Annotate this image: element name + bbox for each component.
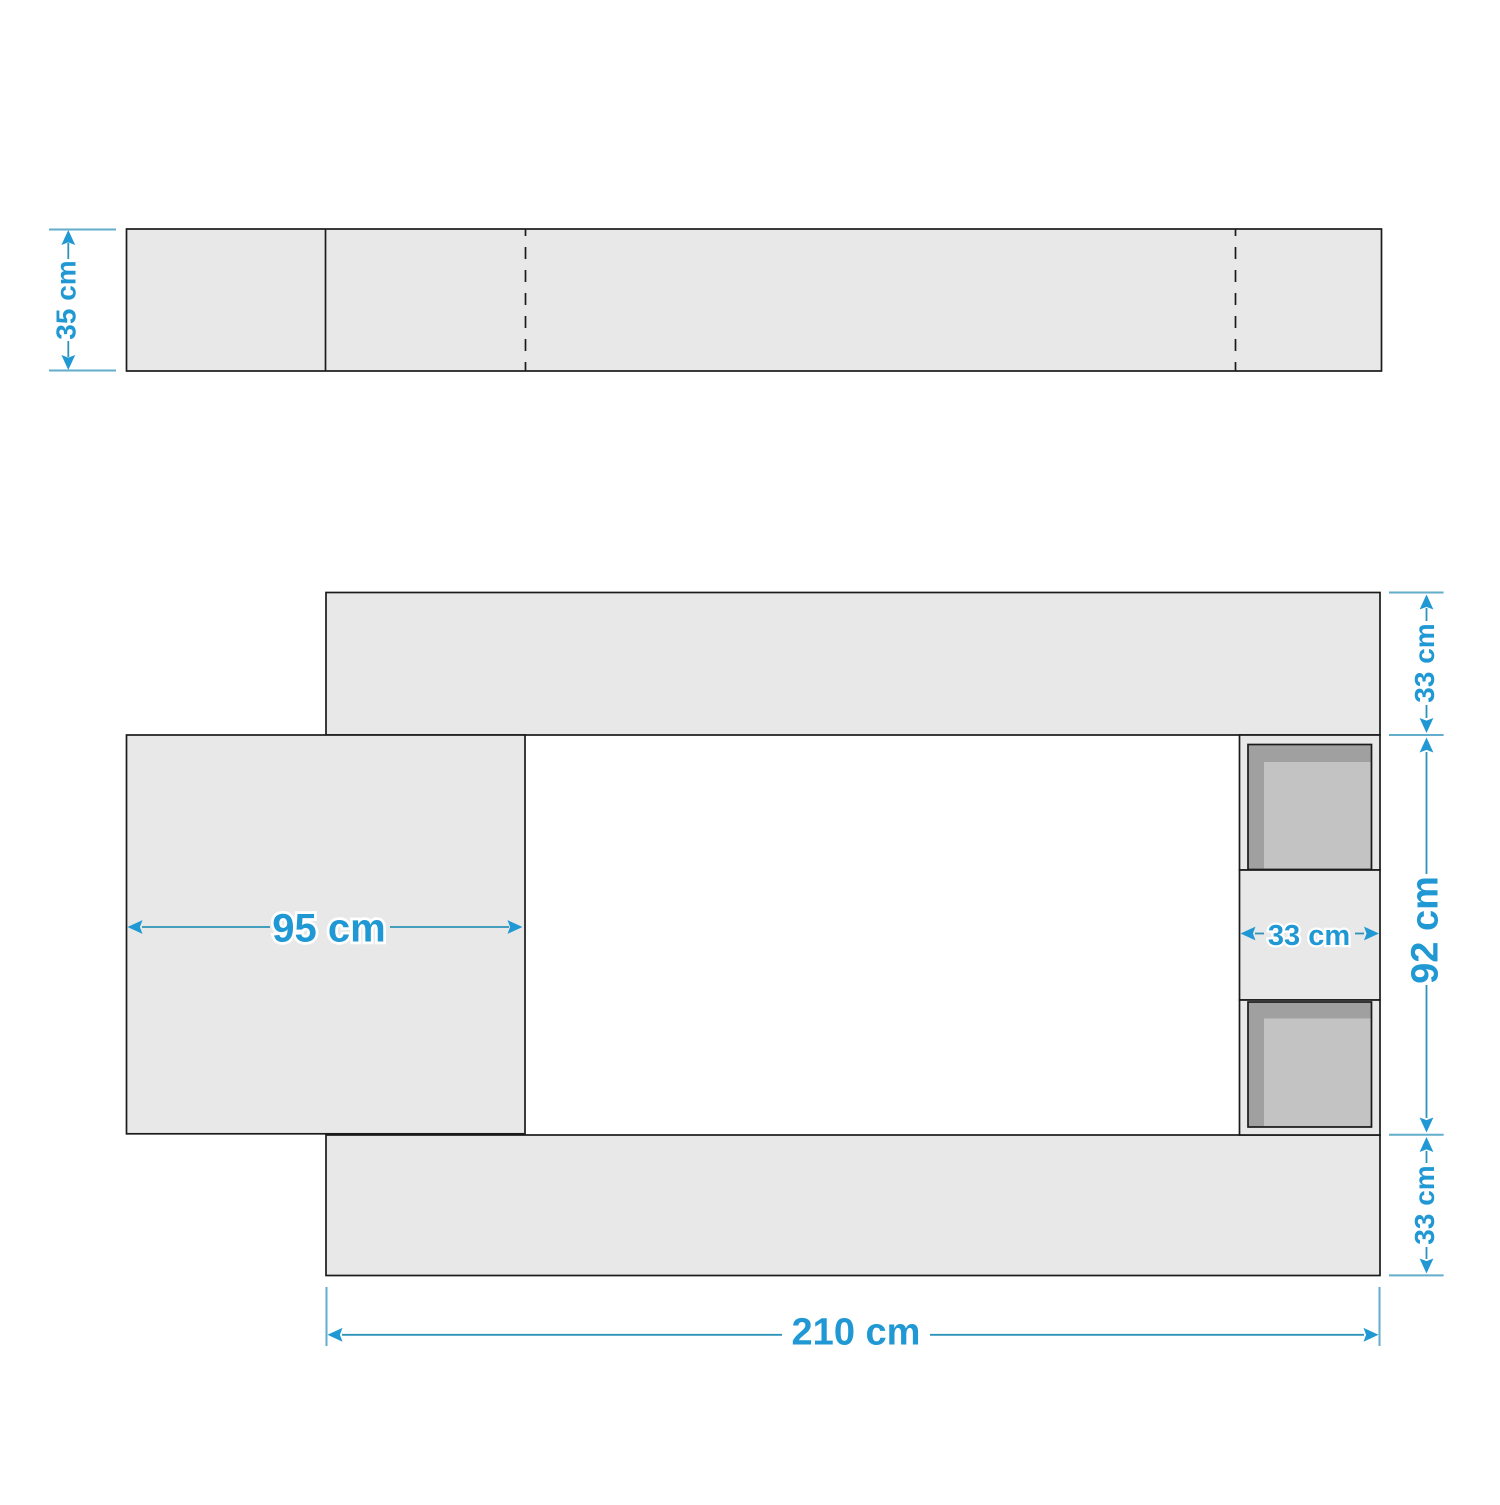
svg-text:92 cm: 92 cm <box>1405 876 1447 984</box>
svg-text:210 cm: 210 cm <box>792 1312 921 1354</box>
svg-text:35 cm: 35 cm <box>51 260 82 339</box>
svg-text:95 cm: 95 cm <box>272 907 385 951</box>
svg-text:33 cm: 33 cm <box>1409 623 1440 702</box>
svg-text:33 cm: 33 cm <box>1409 1165 1440 1244</box>
svg-text:33 cm: 33 cm <box>1268 920 1350 952</box>
